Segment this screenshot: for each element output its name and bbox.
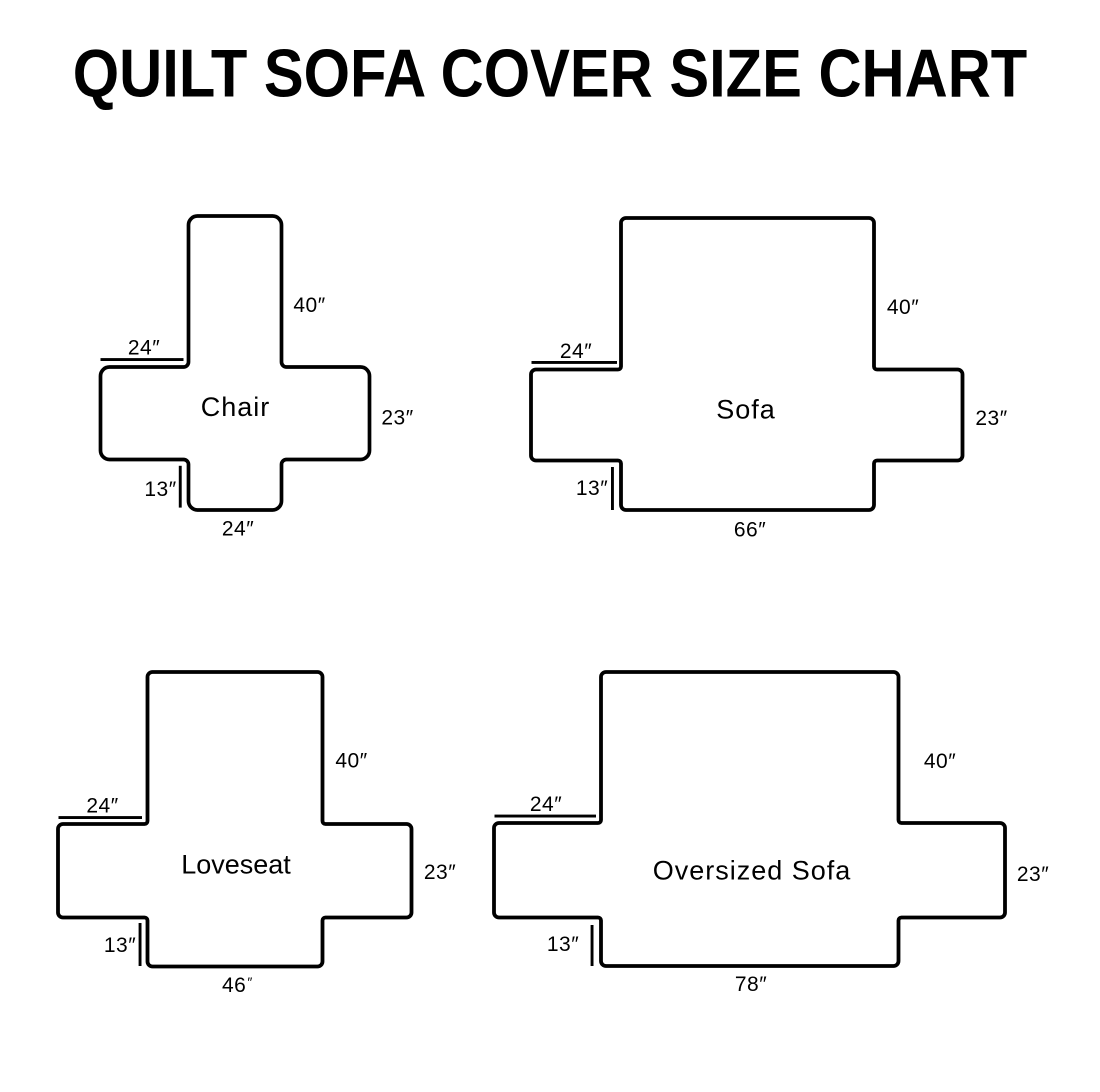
svg-text:23″: 23″ [1017, 863, 1049, 886]
svg-text:23″: 23″ [381, 407, 413, 430]
svg-text:66″: 66″ [734, 518, 766, 541]
svg-text:40″: 40″ [293, 294, 325, 317]
svg-text:Chair: Chair [201, 392, 271, 422]
svg-text:13″: 13″ [144, 478, 176, 501]
svg-text:Loveseat: Loveseat [181, 849, 291, 879]
svg-text:24″: 24″ [530, 793, 562, 816]
svg-text:23″: 23″ [975, 407, 1007, 430]
svg-text:24″: 24″ [128, 337, 160, 360]
svg-text:24″: 24″ [222, 518, 254, 541]
svg-text:13″: 13″ [104, 934, 136, 957]
svg-text:78″: 78″ [735, 973, 767, 996]
svg-text:QUILT SOFA COVER SIZE CHART: QUILT SOFA COVER SIZE CHART [73, 36, 1028, 111]
svg-text:24″: 24″ [86, 795, 118, 818]
svg-text:13″: 13″ [547, 933, 579, 956]
svg-text:46″: 46″ [222, 974, 253, 997]
svg-text:40″: 40″ [924, 750, 956, 773]
svg-text:40″: 40″ [887, 296, 919, 319]
svg-text:23″: 23″ [424, 861, 456, 884]
svg-text:Oversized Sofa: Oversized Sofa [653, 856, 852, 886]
svg-text:40″: 40″ [335, 750, 367, 773]
svg-text:13″: 13″ [576, 477, 608, 500]
svg-text:Sofa: Sofa [716, 395, 776, 425]
svg-text:24″: 24″ [560, 340, 592, 363]
